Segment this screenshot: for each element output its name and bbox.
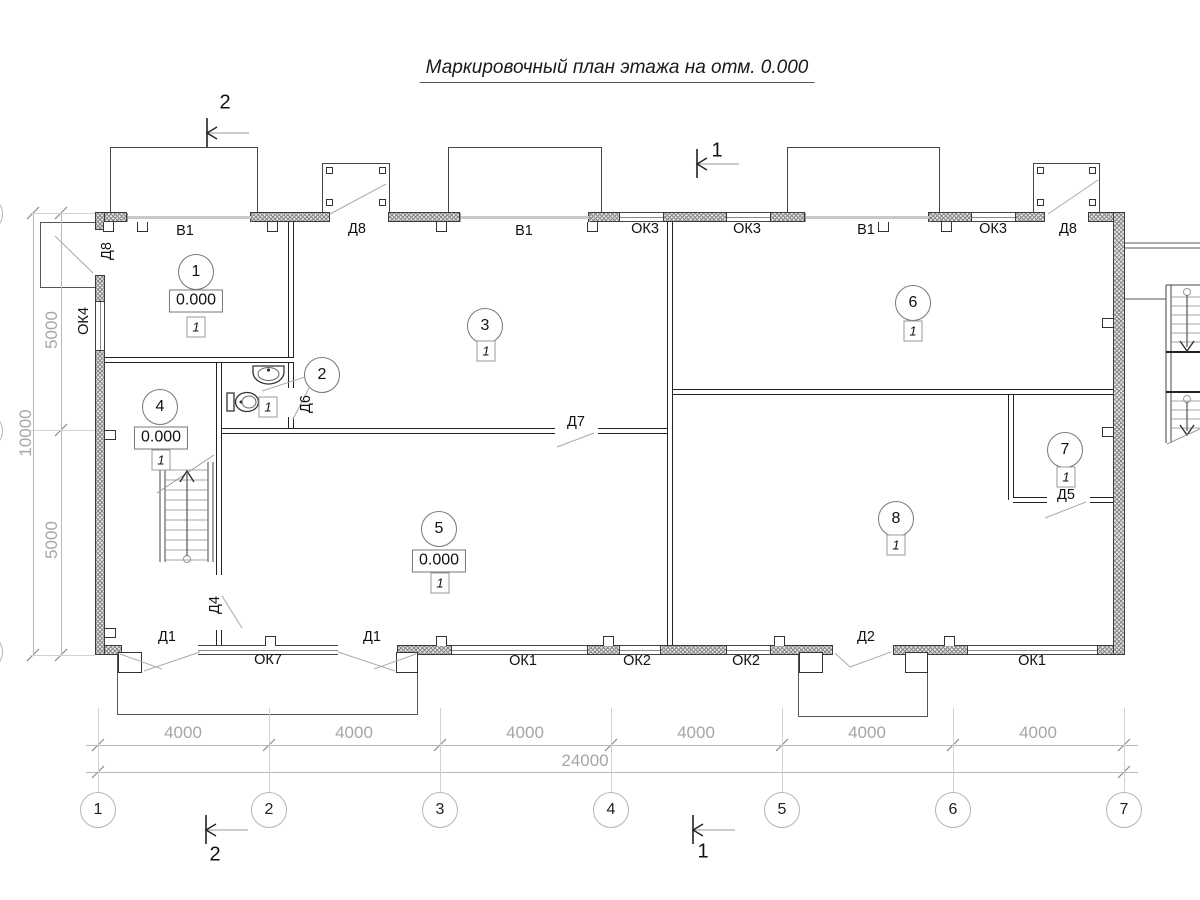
axis-row-circle [0,196,3,232]
floor-type-mark: 1 [152,450,171,471]
interior-wall [222,428,555,434]
opening-label: ОК7 [254,652,282,668]
opening-label: ОК3 [979,221,1007,237]
pilaster [1102,318,1113,328]
interior-wall [667,222,673,645]
opening-label: Д8 [99,242,115,260]
porch [40,222,95,288]
floor-type-mark: 1 [187,317,206,338]
opening-label: ОК3 [631,221,659,237]
pilaster [267,222,278,232]
dim-value: 4000 [335,723,373,743]
room-number: 5 [421,511,457,547]
section-arrows [206,118,739,844]
floor-type-mark: 1 [1057,467,1076,488]
dim-value: 10000 [16,409,36,456]
wall-segment [1113,212,1125,655]
opening-label: Д6 [298,395,314,413]
extension-line [269,708,270,793]
interior-wall [288,222,294,388]
interior-wall [105,357,294,363]
floor-plan: Маркировочный план этажа на отм. 0.000 [0,0,1200,900]
extension-line [782,708,783,793]
dimension-line [61,213,62,655]
pilaster [103,222,114,232]
interior-wall [216,363,222,575]
canopy-post [1037,199,1044,206]
wall-segment [95,275,105,302]
opening-v1 [460,213,590,222]
room-number: 8 [878,501,914,537]
section-label: 1 [697,841,708,864]
opening-label: Д8 [1059,221,1077,237]
axis-circle-5: 5 [764,792,800,828]
opening-label: ОК3 [733,221,761,237]
canopy-post [326,167,333,174]
room-number: 4 [142,389,178,425]
wall-segment [250,212,330,222]
drawing-title: Маркировочный план этажа на отм. 0.000 [420,57,815,83]
axis-circle-4: 4 [593,792,629,828]
dimension-line [86,745,1138,746]
pilaster [137,222,148,232]
extension-line [1124,708,1125,793]
wall-segment [588,212,620,222]
axis-circle-6: 6 [935,792,971,828]
elevation-mark: 0.000 [169,290,223,313]
interior-wall [673,389,1113,395]
dimension-line [86,772,1138,773]
elevation-mark: 0.000 [412,550,466,573]
pilaster [944,636,955,646]
dim-value: 4000 [1019,723,1057,743]
opening-label: Д7 [567,414,585,430]
opening-label: ОК1 [1018,653,1046,669]
axis-circle-3: 3 [422,792,458,828]
section-label: 2 [219,92,230,115]
floor-type-mark: 1 [477,341,496,362]
axis-circle-7: 7 [1106,792,1142,828]
opening-label: Д8 [348,221,366,237]
dim-value: 4000 [506,723,544,743]
door-leaf [396,652,418,673]
floor-type-mark: 1 [259,397,278,418]
wall-segment [1015,212,1045,222]
canopy [110,147,258,212]
interior-wall [1013,497,1047,503]
opening-label: Д5 [1057,487,1075,503]
section-label: 1 [711,140,722,163]
axis-circle-1: 1 [80,792,116,828]
pilaster [436,636,447,646]
wall-segment [660,645,727,655]
interior-wall [216,630,222,645]
room-number: 6 [895,285,931,321]
canopy-post [1037,167,1044,174]
opening-label: В1 [176,223,194,239]
extension-line [30,655,95,656]
pilaster [1102,427,1113,437]
floor-type-mark: 1 [431,573,450,594]
opening-label: Д2 [857,629,875,645]
exterior-staircase-icon [1125,243,1200,444]
axis-circle-2: 2 [251,792,287,828]
room-number: 7 [1047,432,1083,468]
floor-type-mark: 1 [887,535,906,556]
opening-label: ОК4 [76,307,92,335]
section-label: 2 [209,844,220,867]
wall-segment [928,212,972,222]
toilet-icon [227,393,259,412]
floor-type-mark: 1 [904,321,923,342]
canopy-post [379,167,386,174]
extension-line [98,708,99,793]
dim-value: 4000 [164,723,202,743]
canopy-post [1089,167,1096,174]
opening-label: Д1 [363,629,381,645]
canopy [448,147,602,212]
interior-wall [1008,395,1014,500]
opening-label: ОК1 [509,653,537,669]
dim-value: 5000 [42,311,62,349]
pilaster [878,222,889,232]
extension-line [953,708,954,793]
extension-line [440,708,441,793]
canopy [787,147,940,212]
wall-segment [95,350,105,655]
pilaster [105,628,116,638]
pilaster [774,636,785,646]
door-leaf [799,652,823,673]
wall-segment [663,212,727,222]
canopy-post [379,199,386,206]
canopy-post [1089,199,1096,206]
pilaster [265,636,276,646]
opening-v1 [805,213,930,222]
pilaster [587,222,598,232]
dim-total: 24000 [561,751,608,771]
elevation-mark: 0.000 [134,427,188,450]
opening-v1 [127,213,252,222]
opening-label: ОК2 [732,653,760,669]
door-leaf [118,652,142,673]
opening-label: Д1 [158,629,176,645]
wall-segment [388,212,460,222]
room-number: 1 [178,254,214,290]
dim-value: 4000 [848,723,886,743]
canopy-post [326,199,333,206]
interior-wall [598,428,667,434]
pilaster [603,636,614,646]
room-number: 2 [304,357,340,393]
pilaster [105,430,116,440]
pilaster [941,222,952,232]
staircase-icon [157,455,214,563]
opening-label: В1 [857,222,875,238]
axis-row-circle [0,634,3,670]
extension-line [611,708,612,793]
extension-line [30,213,95,214]
door-leaf [905,652,928,673]
extension-line [30,430,95,431]
opening-label: Д4 [207,596,223,614]
wall-segment [587,645,620,655]
leader-lines [222,377,1086,628]
pilaster [436,222,447,232]
dim-value: 4000 [677,723,715,743]
opening-label: В1 [515,223,533,239]
sink-icon [253,366,284,384]
window-ok4 [95,302,105,350]
interior-wall [1090,497,1113,503]
wall-segment [770,212,805,222]
dim-value: 5000 [42,521,62,559]
room-number: 3 [467,308,503,344]
axis-row-circle [0,413,3,449]
opening-label: ОК2 [623,653,651,669]
